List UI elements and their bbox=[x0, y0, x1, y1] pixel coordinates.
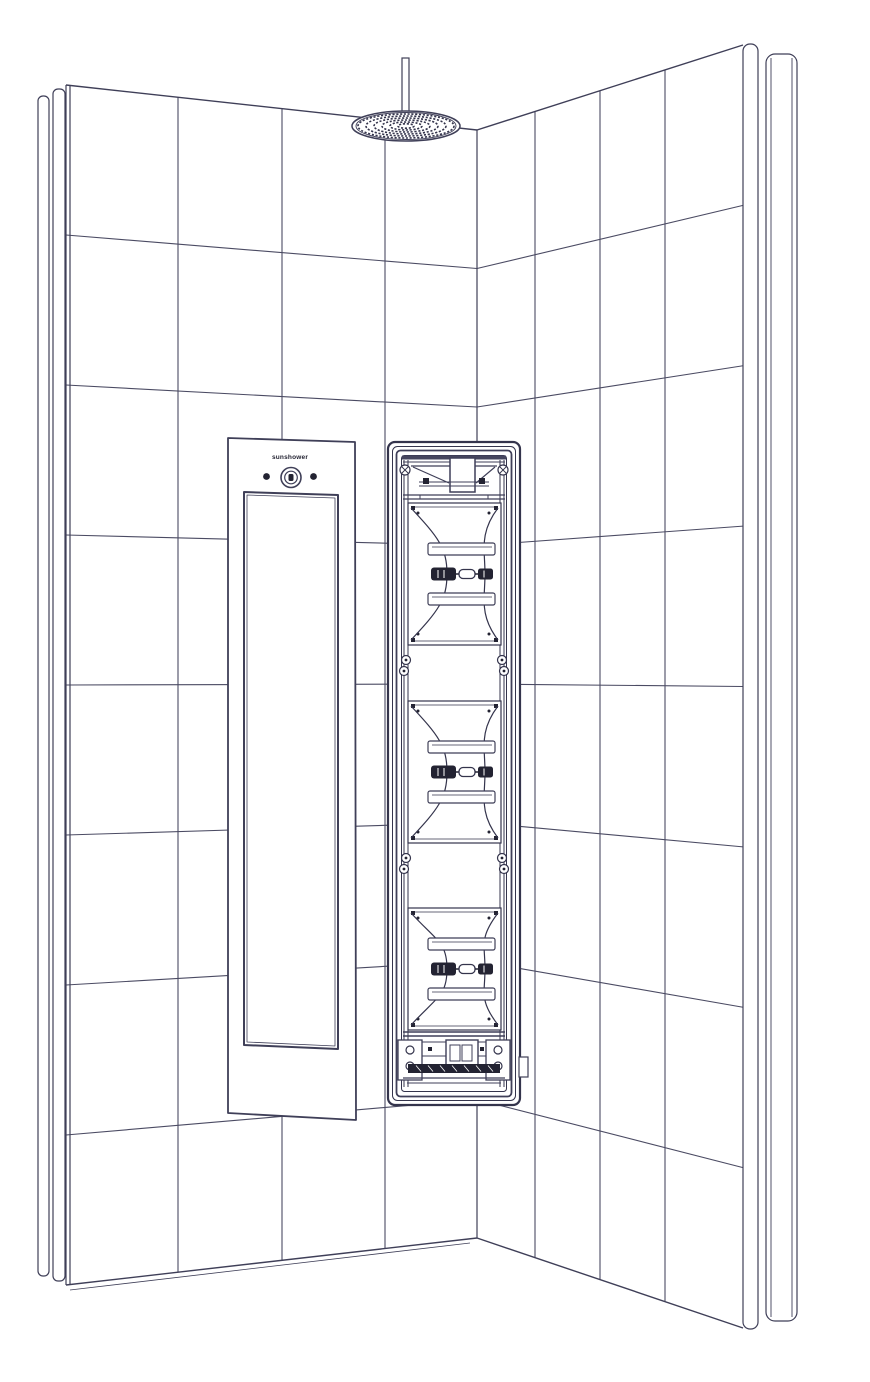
panel-recessed-front bbox=[244, 492, 338, 1049]
infrared-lamp-module bbox=[408, 908, 501, 1030]
lamp-tube bbox=[431, 963, 493, 976]
corner-shower-technical-illustration: sunshower bbox=[0, 0, 870, 1382]
infrared-lamp-module bbox=[408, 503, 501, 645]
lamp-tube bbox=[431, 766, 493, 779]
indicator-dot-left bbox=[263, 473, 270, 480]
brand-logo-text: sunshower bbox=[272, 454, 308, 461]
lamp-tube bbox=[431, 568, 493, 581]
hatched-base-bar bbox=[408, 1064, 500, 1073]
control-button-icon bbox=[281, 468, 301, 488]
indicator-dot-right bbox=[310, 473, 317, 480]
infrared-lamp-module bbox=[408, 701, 501, 843]
brand-logo: sunshower bbox=[272, 454, 308, 461]
recessed-heater-unit bbox=[388, 442, 528, 1105]
side-tab bbox=[519, 1057, 528, 1077]
rain-shower-head bbox=[352, 58, 460, 141]
illustration-canvas: sunshower bbox=[0, 0, 870, 1382]
wall-panel-closed: sunshower bbox=[228, 438, 356, 1120]
